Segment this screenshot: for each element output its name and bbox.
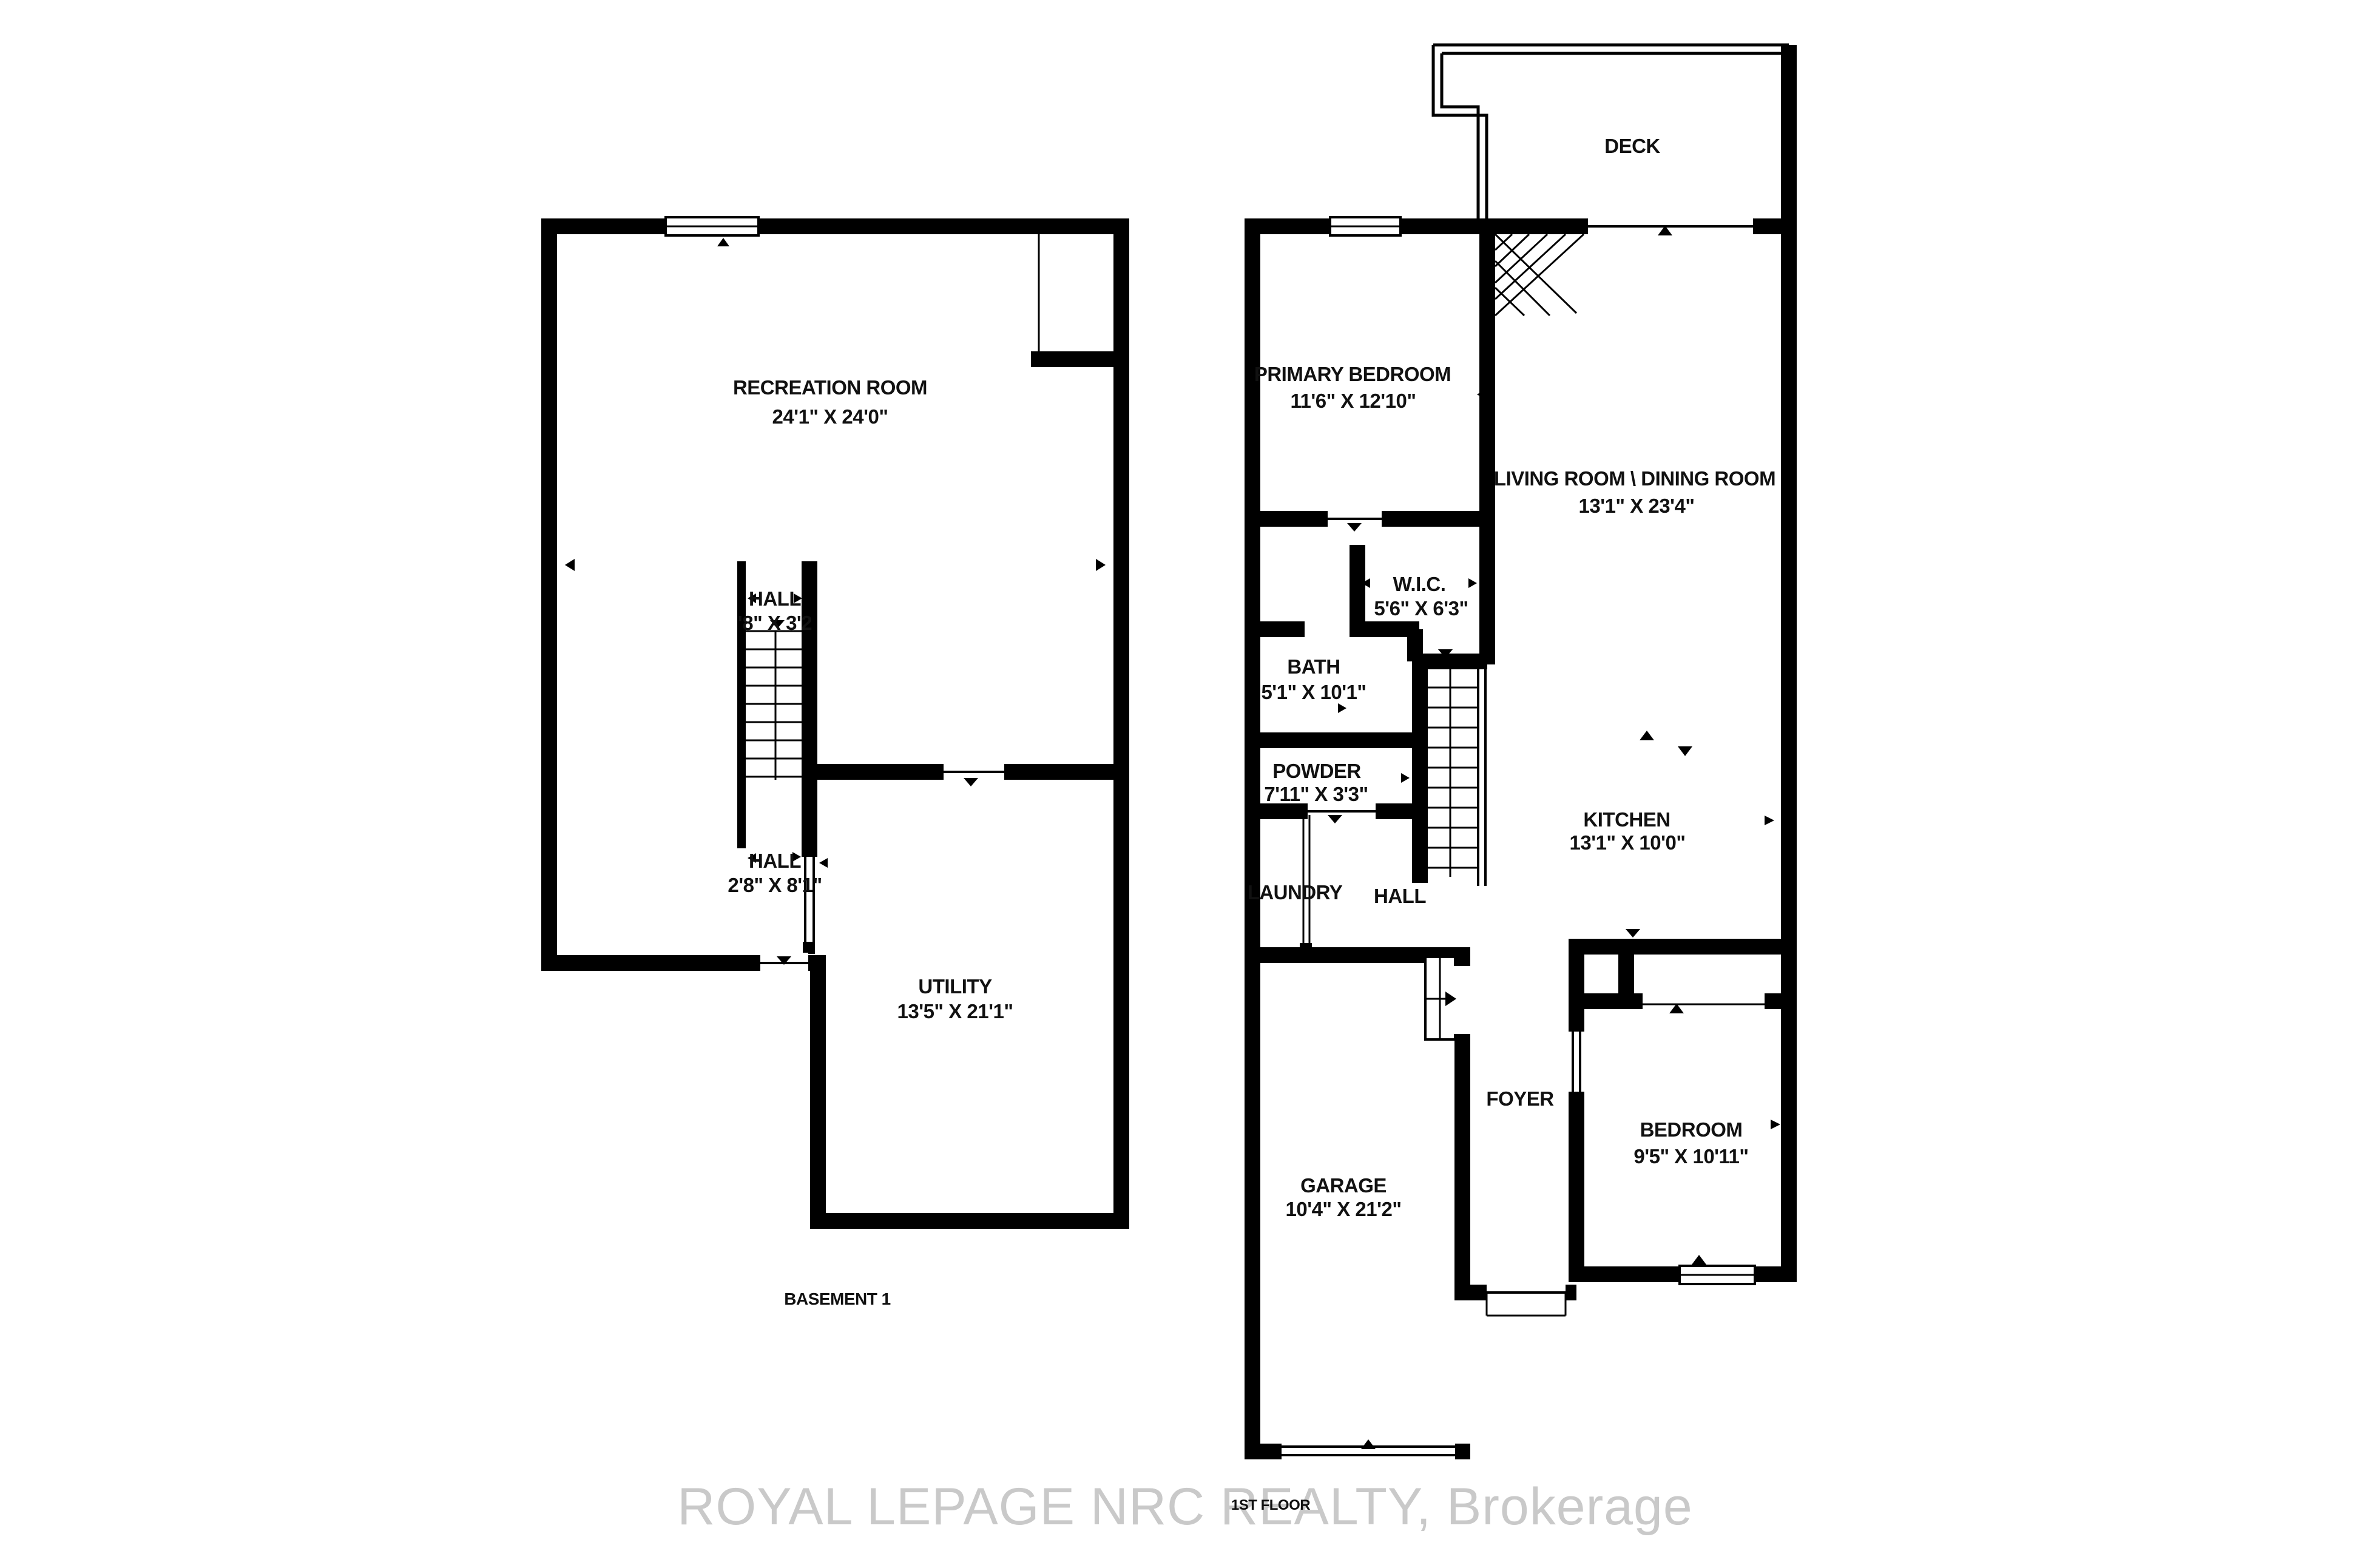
basement-plan: RECREATION ROOM 24'1" X 24'0" HALL '8" X… [549, 215, 1129, 1308]
room-dim-kitchen: 13'1" X 10'0" [1570, 831, 1686, 854]
arrow-right-icon [1468, 578, 1477, 588]
floorplan-canvas: ROYAL LEPAGE NRC REALTY, Brokerage [0, 0, 2358, 1568]
basement-labels: RECREATION ROOM 24'1" X 24'0" HALL '8" X… [728, 376, 1013, 1308]
room-label-garage: GARAGE [1300, 1174, 1387, 1197]
window-marker-icon [1692, 1255, 1706, 1265]
deck-stairs-hatch [1495, 234, 1584, 316]
arrow-down-icon [1678, 746, 1692, 756]
powder-door [1308, 811, 1376, 823]
room-label-wic: W.I.C. [1393, 573, 1446, 595]
first-floor-walls [1245, 45, 1797, 1459]
room-dim-wic: 5'6" X 6'3" [1374, 597, 1468, 620]
basement-door-hall [760, 953, 808, 973]
front-door [1487, 1282, 1566, 1316]
watermark-text: ROYAL LEPAGE NRC REALTY, Brokerage [677, 1478, 1692, 1536]
room-label-deck: DECK [1604, 135, 1660, 157]
room-label-primary-bedroom: PRIMARY BEDROOM [1254, 363, 1451, 385]
first-floor-plan: DECK PRIMARY BEDROOM 11'6" X 12'10" LIVI… [1231, 45, 1797, 1513]
arrow-down-icon [1626, 929, 1640, 938]
room-dim-hall-upper: '8" X 3'2 [738, 612, 812, 634]
room-label-foyer: FOYER [1486, 1087, 1554, 1110]
basement-window-top [664, 215, 760, 246]
arrow-up-icon [1640, 731, 1654, 740]
room-label-utility: UTILITY [918, 975, 992, 998]
door-marker-icon [1328, 815, 1342, 823]
room-dim-living-dining: 13'1" X 23'4" [1579, 495, 1695, 517]
window-marker-icon [717, 238, 729, 246]
main-stairs [1424, 649, 1485, 886]
room-label-laundry: LAUNDRY [1248, 881, 1343, 904]
watermark: ROYAL LEPAGE NRC REALTY, Brokerage [677, 1478, 1692, 1536]
room-dim-powder: 7'11" X 3'3" [1264, 783, 1368, 805]
room-dim-primary-bedroom: 11'6" X 12'10" [1291, 390, 1416, 412]
room-dim-bath: 5'1" X 10'1" [1261, 681, 1366, 703]
room-dim-garage: 10'4" X 21'2" [1286, 1198, 1402, 1220]
floor-title-basement: BASEMENT 1 [784, 1289, 890, 1308]
room-label-hall-lower: HALL [749, 850, 801, 872]
first-floor-labels: DECK PRIMARY BEDROOM 11'6" X 12'10" LIVI… [1231, 135, 1775, 1513]
arrow-right-icon [1765, 816, 1774, 825]
arrow-right-icon [1096, 559, 1106, 571]
primary-bedroom-window [1329, 215, 1402, 238]
room-label-powder: POWDER [1272, 760, 1361, 782]
basement-dimension-arrows [565, 559, 1106, 868]
basement-stairs-landing [1425, 957, 1473, 1039]
room-dim-hall-lower: 2'8" X 8'1" [728, 874, 822, 896]
primary-bedroom-door [1328, 509, 1382, 532]
room-dim-utility: 13'5" X 21'1" [897, 1000, 1013, 1022]
arrow-left-icon [819, 858, 828, 868]
room-label-bath: BATH [1287, 655, 1340, 678]
room-label-bedroom: BEDROOM [1640, 1118, 1743, 1141]
basement-walls [549, 226, 1129, 1221]
room-dim-recreation: 24'1" X 24'0" [772, 405, 888, 428]
bedroom-window [1678, 1255, 1756, 1286]
room-label-living-dining: LIVING ROOM \ DINING ROOM [1494, 467, 1775, 490]
room-label-kitchen: KITCHEN [1583, 808, 1670, 831]
room-label-recreation: RECREATION ROOM [733, 376, 927, 399]
arrow-right-icon [1338, 703, 1346, 713]
floorplan-page: ROYAL LEPAGE NRC REALTY, Brokerage [0, 0, 2358, 1568]
basement-door-utility [944, 762, 1004, 786]
room-label-hall: HALL [1374, 885, 1426, 907]
arrow-left-icon [565, 559, 575, 571]
room-label-hall-upper: HALL [749, 587, 801, 610]
arrow-right-icon [1771, 1120, 1780, 1129]
bedroom-door-opening [1643, 1004, 1765, 1013]
floor-title-first: 1ST FLOOR [1231, 1497, 1310, 1513]
garage-door [1282, 1439, 1455, 1462]
deck-door-opening [1588, 216, 1753, 237]
arrow-right-icon [1401, 773, 1410, 783]
room-dim-bedroom: 9'5" X 10'11" [1633, 1145, 1748, 1168]
basement-stairs [746, 620, 805, 780]
first-floor-dimension-arrows [1338, 390, 1790, 1129]
